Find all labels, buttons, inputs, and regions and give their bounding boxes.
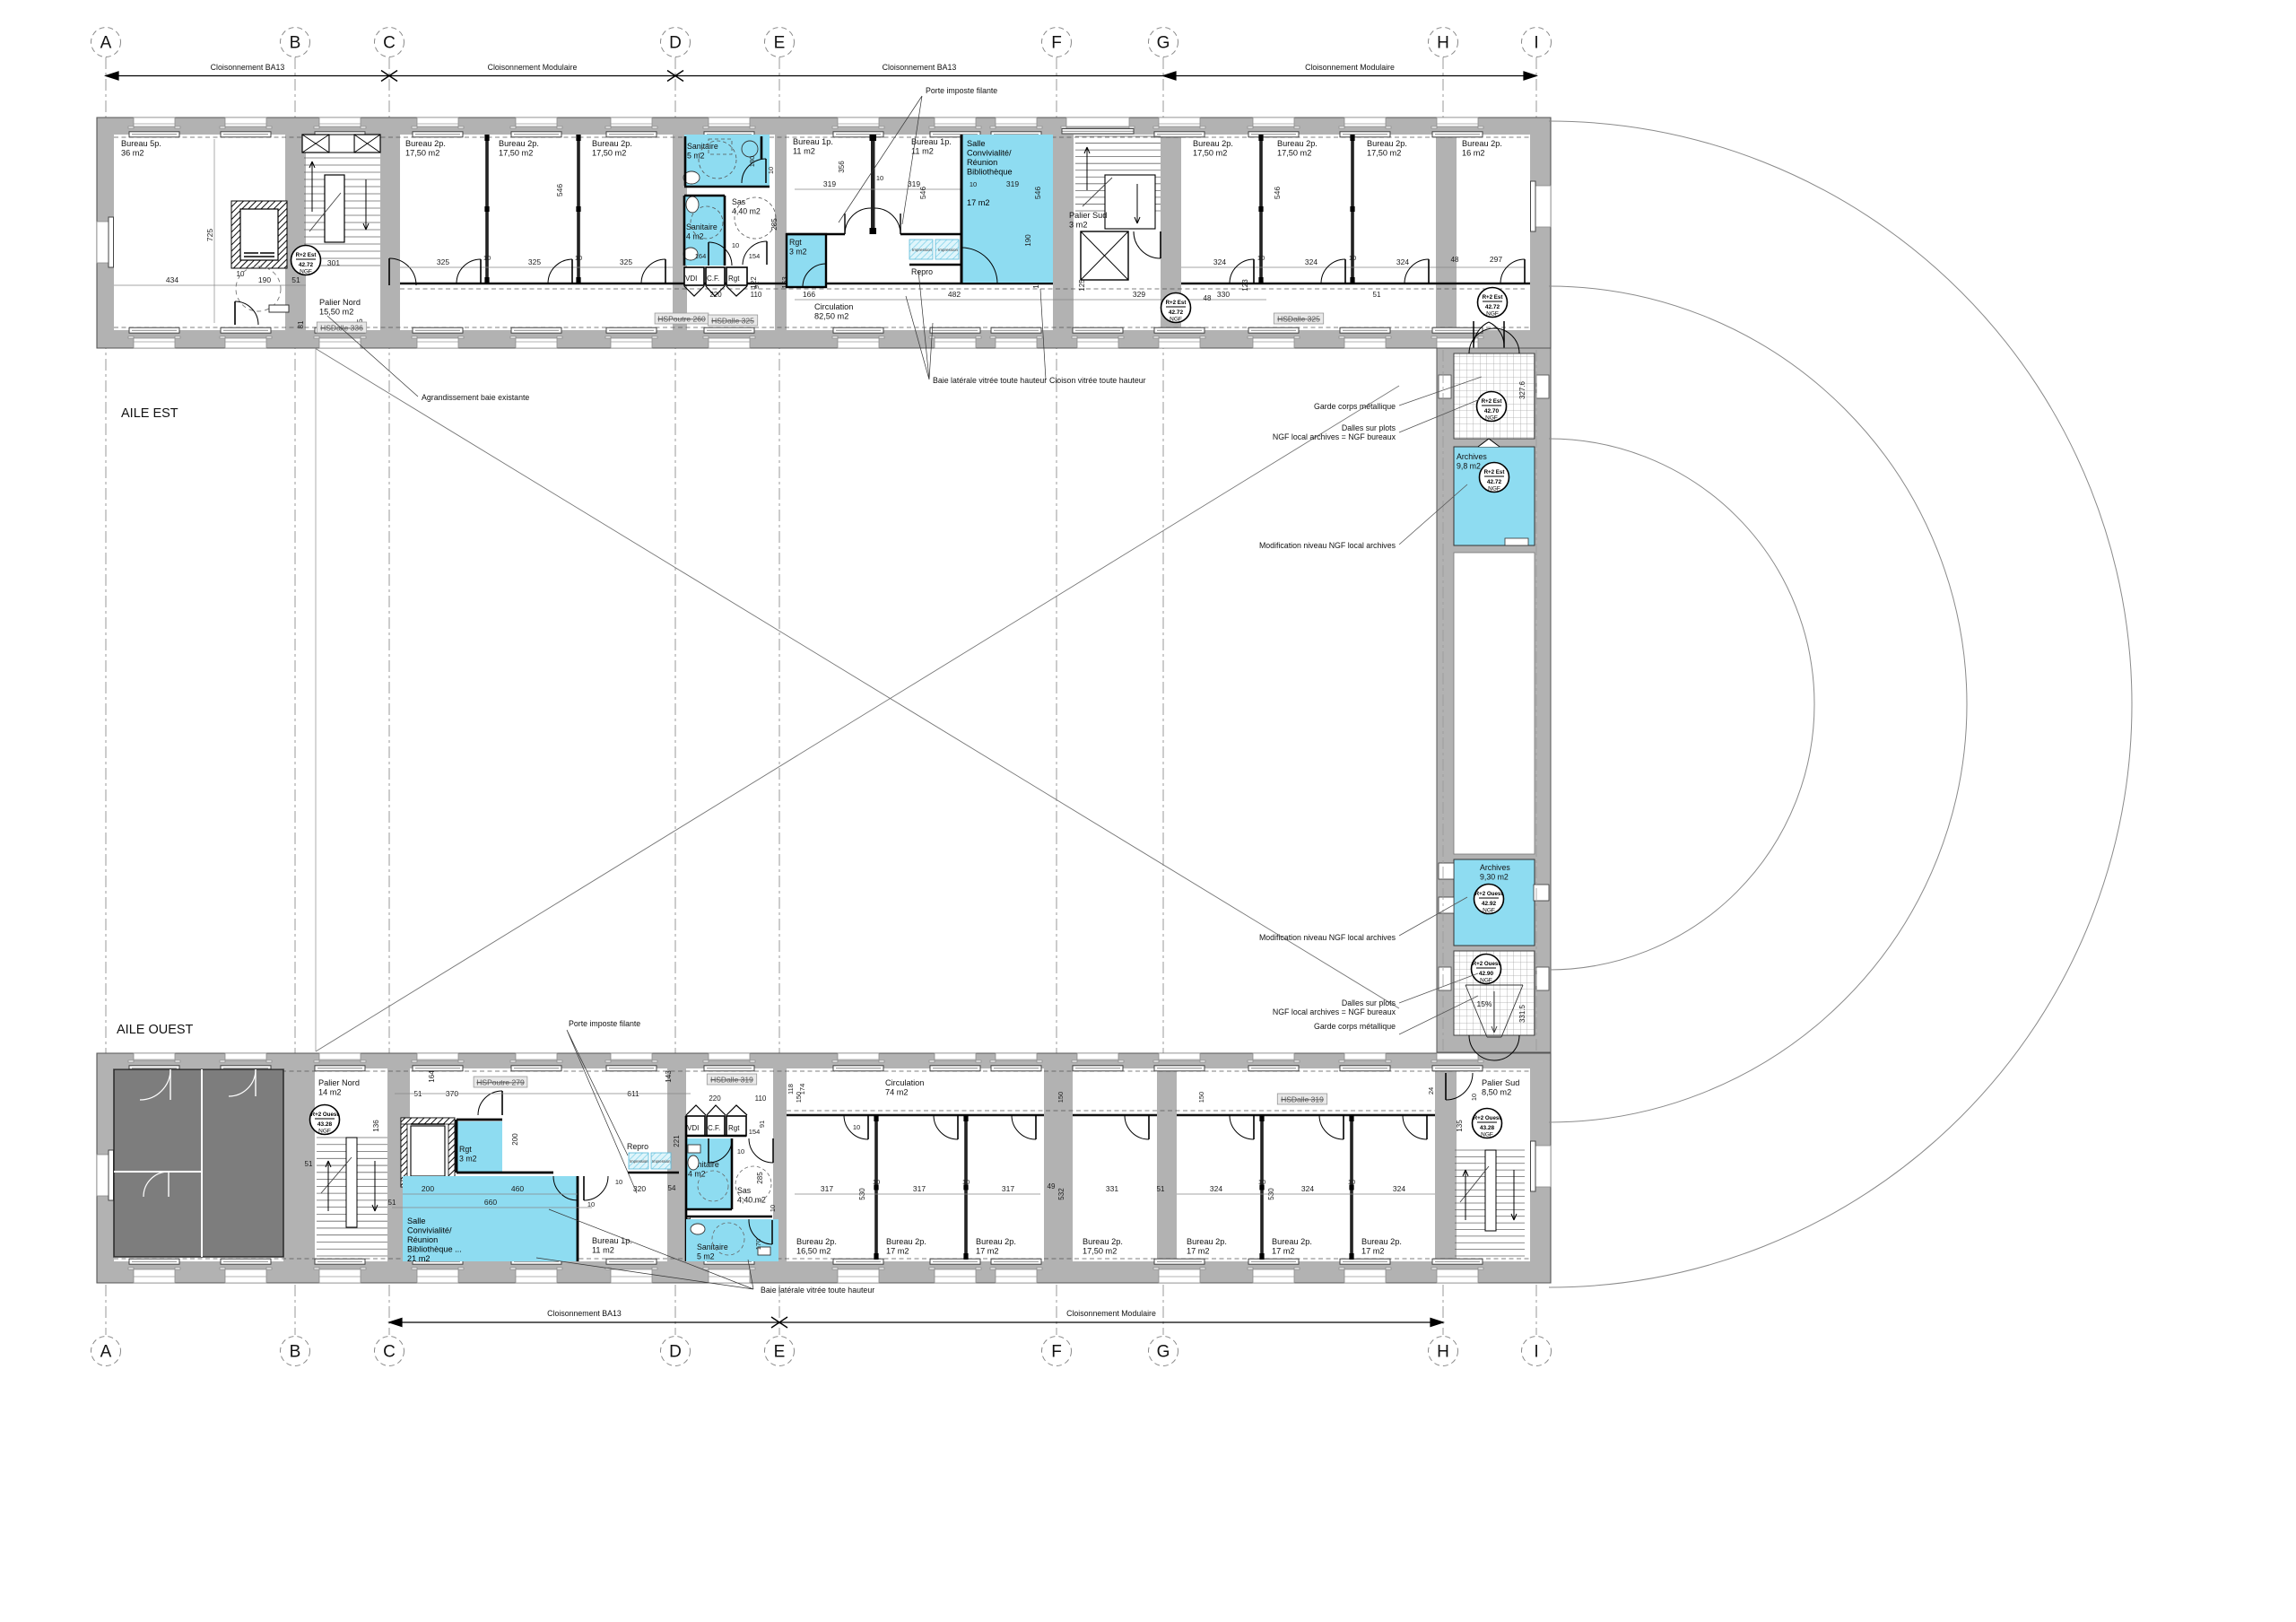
svg-text:NGF: NGF bbox=[1483, 908, 1495, 914]
svg-text:Repro: Repro bbox=[911, 267, 933, 276]
svg-text:150: 150 bbox=[795, 1092, 803, 1103]
svg-text:C: C bbox=[383, 34, 396, 53]
svg-text:14 m2: 14 m2 bbox=[318, 1088, 342, 1097]
svg-text:10: 10 bbox=[876, 174, 883, 182]
svg-text:532: 532 bbox=[1057, 1188, 1065, 1200]
svg-text:42.72: 42.72 bbox=[1485, 304, 1500, 310]
svg-text:49: 49 bbox=[1048, 1182, 1056, 1190]
svg-text:5 m2: 5 m2 bbox=[697, 1252, 715, 1261]
svg-text:110: 110 bbox=[751, 291, 762, 299]
svg-text:HSDalle 325: HSDalle 325 bbox=[711, 317, 754, 326]
svg-text:10: 10 bbox=[615, 1178, 622, 1186]
svg-text:220: 220 bbox=[709, 1094, 721, 1103]
svg-text:Bureau 2p.: Bureau 2p. bbox=[592, 139, 632, 148]
svg-text:Cloisonnement Modulaire: Cloisonnement Modulaire bbox=[1066, 1309, 1156, 1318]
svg-text:Bureau 1p.: Bureau 1p. bbox=[911, 137, 952, 146]
svg-text:325: 325 bbox=[528, 257, 541, 266]
svg-text:327.6: 327.6 bbox=[1518, 380, 1526, 399]
svg-text:Bureau 1p.: Bureau 1p. bbox=[793, 137, 833, 146]
svg-text:42.72: 42.72 bbox=[1169, 310, 1184, 316]
svg-text:190: 190 bbox=[1024, 234, 1032, 247]
svg-text:725: 725 bbox=[205, 229, 214, 241]
svg-text:Dalles sur plots: Dalles sur plots bbox=[1342, 423, 1396, 432]
svg-text:8,50 m2: 8,50 m2 bbox=[1482, 1088, 1511, 1097]
svg-text:HSPoutre 279: HSPoutre 279 bbox=[476, 1078, 525, 1087]
svg-text:C.F.: C.F. bbox=[707, 275, 719, 283]
svg-text:136: 136 bbox=[372, 1120, 380, 1132]
svg-text:17 m2: 17 m2 bbox=[976, 1247, 999, 1256]
svg-text:Cloison vitrée toute hauteur: Cloison vitrée toute hauteur bbox=[1049, 376, 1146, 385]
svg-text:H: H bbox=[1437, 1343, 1449, 1362]
svg-text:Modification niveau NGF local: Modification niveau NGF local archives bbox=[1259, 933, 1396, 942]
svg-text:17 m2: 17 m2 bbox=[1272, 1247, 1295, 1256]
svg-text:74 m2: 74 m2 bbox=[885, 1088, 909, 1097]
svg-text:Rgt: Rgt bbox=[789, 238, 802, 247]
svg-text:51: 51 bbox=[1373, 291, 1381, 299]
svg-text:Bureau 2p.: Bureau 2p. bbox=[1277, 139, 1318, 148]
svg-text:Bureau 2p.: Bureau 2p. bbox=[1462, 139, 1502, 148]
svg-text:15,50 m2: 15,50 m2 bbox=[319, 308, 353, 317]
svg-text:I: I bbox=[1534, 1343, 1538, 1362]
svg-text:125: 125 bbox=[1078, 279, 1086, 292]
svg-text:324: 324 bbox=[1210, 1184, 1222, 1193]
svg-text:221: 221 bbox=[673, 1135, 681, 1147]
svg-text:17,50 m2: 17,50 m2 bbox=[1277, 149, 1311, 158]
svg-text:Rgt: Rgt bbox=[459, 1145, 472, 1154]
svg-text:51: 51 bbox=[414, 1090, 422, 1098]
svg-text:434: 434 bbox=[166, 275, 178, 284]
svg-text:81: 81 bbox=[297, 320, 305, 328]
svg-text:Bureau 2p.: Bureau 2p. bbox=[886, 1237, 926, 1246]
svg-text:AILE EST: AILE EST bbox=[121, 406, 178, 421]
svg-text:NGF local archives = NGF burea: NGF local archives = NGF bureaux bbox=[1273, 1007, 1396, 1016]
svg-text:D: D bbox=[669, 34, 682, 53]
svg-text:51: 51 bbox=[1157, 1185, 1165, 1193]
svg-text:143: 143 bbox=[665, 1070, 673, 1083]
svg-text:3 m2: 3 m2 bbox=[789, 248, 807, 257]
svg-text:VDI: VDI bbox=[687, 1124, 699, 1132]
svg-text:150: 150 bbox=[1057, 1092, 1065, 1103]
svg-text:R+2 Est: R+2 Est bbox=[1166, 300, 1187, 306]
svg-text:Bureau 2p.: Bureau 2p. bbox=[1272, 1237, 1312, 1246]
svg-text:10: 10 bbox=[873, 1178, 880, 1186]
svg-text:C.F.: C.F. bbox=[708, 1124, 720, 1132]
svg-text:17,50 m2: 17,50 m2 bbox=[499, 149, 533, 158]
svg-text:54: 54 bbox=[668, 1184, 676, 1192]
svg-text:324: 324 bbox=[1393, 1184, 1405, 1193]
svg-text:A: A bbox=[100, 34, 112, 53]
svg-text:Modification niveau NGF local: Modification niveau NGF local archives bbox=[1259, 541, 1396, 550]
svg-text:110: 110 bbox=[755, 1094, 767, 1103]
svg-text:546: 546 bbox=[1273, 187, 1282, 199]
svg-text:546: 546 bbox=[555, 184, 564, 196]
svg-text:NGF: NGF bbox=[300, 269, 312, 275]
svg-text:NGF: NGF bbox=[1485, 415, 1498, 422]
svg-text:Rgt: Rgt bbox=[728, 275, 740, 283]
svg-text:Sanitaire: Sanitaire bbox=[697, 1243, 728, 1251]
svg-text:Archives: Archives bbox=[1480, 863, 1510, 872]
svg-text:Réunion: Réunion bbox=[967, 158, 997, 167]
svg-text:NGF: NGF bbox=[1480, 978, 1492, 984]
svg-text:Bureau 2p.: Bureau 2p. bbox=[1083, 1237, 1123, 1246]
svg-text:190: 190 bbox=[258, 275, 271, 284]
svg-text:NGF local archives = NGF burea: NGF local archives = NGF bureaux bbox=[1273, 432, 1396, 441]
svg-text:Bibliothèque: Bibliothèque bbox=[967, 168, 1013, 177]
svg-text:AILE OUEST: AILE OUEST bbox=[117, 1023, 194, 1037]
svg-text:10: 10 bbox=[767, 167, 775, 174]
svg-text:16,50 m2: 16,50 m2 bbox=[796, 1247, 831, 1256]
svg-text:Garde corps métallique: Garde corps métallique bbox=[1314, 402, 1396, 411]
svg-text:Palier Sud: Palier Sud bbox=[1069, 211, 1107, 220]
svg-text:Bureau 2p.: Bureau 2p. bbox=[499, 139, 539, 148]
svg-text:NGF: NGF bbox=[1488, 486, 1500, 493]
svg-text:330: 330 bbox=[1217, 290, 1230, 299]
svg-text:546: 546 bbox=[918, 187, 927, 199]
svg-text:Palier Nord: Palier Nord bbox=[319, 298, 361, 307]
svg-text:10: 10 bbox=[962, 1178, 970, 1186]
svg-text:D: D bbox=[669, 1343, 682, 1362]
svg-text:Palier Sud: Palier Sud bbox=[1482, 1078, 1519, 1087]
svg-text:10: 10 bbox=[970, 180, 977, 188]
svg-text:10: 10 bbox=[853, 1123, 860, 1131]
svg-text:48: 48 bbox=[1204, 294, 1212, 302]
svg-text:Bureau 2p.: Bureau 2p. bbox=[976, 1237, 1016, 1246]
svg-text:301: 301 bbox=[327, 258, 340, 267]
svg-text:3 m2: 3 m2 bbox=[459, 1155, 477, 1164]
svg-text:10: 10 bbox=[237, 270, 245, 278]
svg-text:324: 324 bbox=[1396, 257, 1409, 266]
svg-text:154: 154 bbox=[749, 1128, 761, 1136]
svg-text:17,50 m2: 17,50 m2 bbox=[1367, 149, 1401, 158]
svg-text:43.28: 43.28 bbox=[317, 1121, 333, 1128]
svg-text:E: E bbox=[774, 1343, 786, 1362]
svg-text:17 m2: 17 m2 bbox=[886, 1247, 909, 1256]
svg-text:91: 91 bbox=[758, 1121, 766, 1128]
svg-text:Palier Nord: Palier Nord bbox=[318, 1078, 360, 1087]
svg-text:317: 317 bbox=[1002, 1184, 1014, 1193]
svg-text:324: 324 bbox=[1213, 257, 1226, 266]
svg-text:Baie latérale vitrée toute hau: Baie latérale vitrée toute hauteur bbox=[761, 1286, 874, 1295]
svg-text:A: A bbox=[100, 1343, 112, 1362]
svg-text:Impression: Impression bbox=[938, 248, 959, 252]
svg-text:Circulation: Circulation bbox=[885, 1078, 924, 1087]
svg-text:21 m2: 21 m2 bbox=[407, 1254, 430, 1263]
svg-text:317: 317 bbox=[913, 1184, 926, 1193]
svg-text:Bureau 2p.: Bureau 2p. bbox=[1361, 1237, 1402, 1246]
svg-text:166: 166 bbox=[803, 290, 815, 299]
svg-text:10: 10 bbox=[769, 1205, 777, 1212]
svg-text:10: 10 bbox=[1257, 254, 1265, 262]
svg-text:Impression: Impression bbox=[912, 248, 933, 252]
svg-text:Dalles sur plots: Dalles sur plots bbox=[1342, 998, 1396, 1007]
svg-text:164: 164 bbox=[695, 252, 707, 260]
svg-text:356: 356 bbox=[838, 161, 846, 173]
svg-text:36 m2: 36 m2 bbox=[121, 149, 144, 158]
svg-text:200: 200 bbox=[422, 1184, 434, 1193]
svg-text:325: 325 bbox=[437, 257, 449, 266]
svg-text:170: 170 bbox=[754, 1239, 762, 1251]
svg-text:I: I bbox=[1534, 34, 1538, 53]
svg-text:Agrandissement baie existante: Agrandissement baie existante bbox=[422, 393, 529, 402]
svg-text:319: 319 bbox=[823, 179, 836, 188]
svg-text:Cloisonnement BA13: Cloisonnement BA13 bbox=[211, 63, 285, 72]
svg-text:4,40 m2: 4,40 m2 bbox=[732, 207, 761, 216]
svg-text:5 m2: 5 m2 bbox=[687, 152, 705, 161]
svg-text:Bureau 1p.: Bureau 1p. bbox=[592, 1236, 632, 1245]
svg-text:Sas: Sas bbox=[737, 1186, 752, 1195]
svg-text:10: 10 bbox=[483, 254, 491, 262]
svg-text:324: 324 bbox=[1305, 257, 1318, 266]
svg-text:Cloisonnement Modulaire: Cloisonnement Modulaire bbox=[488, 63, 578, 72]
svg-text:10: 10 bbox=[1470, 1094, 1478, 1101]
svg-text:E: E bbox=[774, 34, 786, 53]
svg-text:319: 319 bbox=[1006, 179, 1019, 188]
svg-text:Convivialité/: Convivialité/ bbox=[407, 1226, 452, 1235]
svg-text:24: 24 bbox=[1427, 1087, 1435, 1094]
svg-text:Impression: Impression bbox=[630, 1159, 648, 1164]
svg-text:180: 180 bbox=[748, 156, 756, 168]
svg-text:17 m2: 17 m2 bbox=[1361, 1247, 1385, 1256]
svg-text:Cloisonnement BA13: Cloisonnement BA13 bbox=[547, 1309, 622, 1318]
svg-text:Bureau 2p.: Bureau 2p. bbox=[1187, 1237, 1227, 1246]
svg-text:HSDalle 319: HSDalle 319 bbox=[710, 1076, 753, 1085]
svg-text:11 m2: 11 m2 bbox=[793, 147, 815, 156]
svg-text:546: 546 bbox=[1033, 187, 1042, 199]
svg-text:17,50 m2: 17,50 m2 bbox=[1193, 149, 1227, 158]
svg-text:297: 297 bbox=[1490, 255, 1502, 264]
svg-text:Repro: Repro bbox=[627, 1142, 648, 1151]
svg-text:17,50 m2: 17,50 m2 bbox=[1083, 1247, 1117, 1256]
svg-text:Réunion: Réunion bbox=[407, 1235, 438, 1244]
svg-text:42.70: 42.70 bbox=[1484, 408, 1500, 414]
svg-text:42.92: 42.92 bbox=[1482, 901, 1497, 907]
svg-text:135: 135 bbox=[1456, 1120, 1464, 1132]
svg-text:331: 331 bbox=[1106, 1184, 1118, 1193]
svg-text:G: G bbox=[1157, 34, 1170, 53]
svg-text:42.72: 42.72 bbox=[299, 262, 314, 268]
svg-text:R+2 Est: R+2 Est bbox=[1483, 294, 1503, 301]
svg-text:Porte imposte filante: Porte imposte filante bbox=[926, 86, 997, 95]
svg-text:Archives: Archives bbox=[1457, 452, 1487, 461]
svg-text:Impression: Impression bbox=[652, 1159, 671, 1164]
svg-text:51: 51 bbox=[305, 1160, 313, 1168]
svg-text:10: 10 bbox=[575, 254, 582, 262]
svg-text:660: 660 bbox=[484, 1198, 497, 1207]
svg-text:Bureau 2p.: Bureau 2p. bbox=[1367, 139, 1407, 148]
svg-text:51: 51 bbox=[291, 275, 300, 284]
svg-text:17,50 m2: 17,50 m2 bbox=[592, 149, 626, 158]
svg-text:HSDalle 336: HSDalle 336 bbox=[320, 324, 363, 333]
svg-text:R+2 Ouest: R+2 Ouest bbox=[1473, 961, 1500, 967]
svg-text:Salle: Salle bbox=[967, 139, 985, 148]
svg-text:11 m2: 11 m2 bbox=[592, 1246, 614, 1255]
svg-text:R+2 Ouest: R+2 Ouest bbox=[311, 1112, 339, 1118]
svg-text:15%: 15% bbox=[1476, 999, 1492, 1008]
svg-text:B: B bbox=[290, 1343, 301, 1362]
svg-text:Salle: Salle bbox=[407, 1216, 425, 1225]
svg-text:Sanitaire: Sanitaire bbox=[686, 222, 717, 231]
svg-text:285: 285 bbox=[770, 218, 778, 231]
svg-text:10: 10 bbox=[737, 1147, 744, 1155]
svg-text:285: 285 bbox=[756, 1172, 764, 1184]
svg-text:3 m2: 3 m2 bbox=[1069, 221, 1087, 230]
svg-text:10: 10 bbox=[732, 241, 739, 249]
svg-text:17 m2: 17 m2 bbox=[967, 198, 990, 207]
svg-text:123: 123 bbox=[1241, 279, 1249, 292]
svg-text:9,8 m2: 9,8 m2 bbox=[1457, 462, 1481, 471]
svg-text:Sanitaire: Sanitaire bbox=[687, 142, 718, 151]
svg-text:4 m2: 4 m2 bbox=[688, 1170, 706, 1179]
svg-text:Bureau 2p.: Bureau 2p. bbox=[796, 1237, 837, 1246]
svg-text:NGF: NGF bbox=[1481, 1132, 1493, 1138]
svg-text:154: 154 bbox=[749, 252, 761, 260]
svg-text:R+2 Ouest: R+2 Ouest bbox=[1474, 1115, 1501, 1121]
svg-text:VDI: VDI bbox=[685, 275, 697, 283]
svg-text:122: 122 bbox=[750, 276, 758, 289]
svg-text:NGF: NGF bbox=[1170, 317, 1182, 323]
svg-text:200: 200 bbox=[511, 1133, 519, 1146]
svg-text:51: 51 bbox=[388, 1199, 396, 1207]
svg-text:10: 10 bbox=[1349, 254, 1356, 262]
svg-text:48: 48 bbox=[1451, 256, 1459, 264]
svg-text:329: 329 bbox=[1133, 290, 1145, 299]
svg-text:17 m2: 17 m2 bbox=[1187, 1247, 1210, 1256]
svg-text:118: 118 bbox=[787, 1084, 795, 1094]
svg-text:Bureau 2p.: Bureau 2p. bbox=[1193, 139, 1233, 148]
svg-text:Convivialité/: Convivialité/ bbox=[967, 149, 1012, 158]
svg-text:R+2 Est: R+2 Est bbox=[296, 252, 317, 258]
svg-text:325: 325 bbox=[620, 257, 632, 266]
svg-text:Circulation: Circulation bbox=[814, 302, 853, 311]
svg-text:HSPoutre 260: HSPoutre 260 bbox=[657, 315, 706, 324]
svg-text:Rgt: Rgt bbox=[728, 1124, 740, 1132]
svg-text:460: 460 bbox=[511, 1184, 524, 1193]
svg-text:C: C bbox=[383, 1343, 396, 1362]
svg-text:42.90: 42.90 bbox=[1479, 971, 1494, 977]
svg-text:164: 164 bbox=[428, 1070, 436, 1083]
svg-text:NGF: NGF bbox=[1486, 311, 1499, 318]
svg-text:F: F bbox=[1051, 1343, 1062, 1362]
svg-text:Bureau 5p.: Bureau 5p. bbox=[121, 139, 161, 148]
svg-text:G: G bbox=[1157, 1343, 1170, 1362]
svg-text:150: 150 bbox=[1197, 1092, 1205, 1103]
svg-text:317: 317 bbox=[821, 1184, 833, 1193]
svg-text:HSDalle 325: HSDalle 325 bbox=[1277, 315, 1320, 324]
svg-text:482: 482 bbox=[948, 290, 961, 299]
svg-text:NGF: NGF bbox=[318, 1129, 331, 1135]
svg-text:H: H bbox=[1437, 34, 1449, 53]
svg-text:B: B bbox=[290, 34, 301, 53]
svg-text:R+2 Ouest: R+2 Ouest bbox=[1475, 891, 1503, 897]
svg-text:Garde corps métallique: Garde corps métallique bbox=[1314, 1022, 1396, 1031]
svg-text:Bureau 2p.: Bureau 2p. bbox=[405, 139, 446, 148]
svg-text:F: F bbox=[1051, 34, 1062, 53]
svg-text:Bibliothèque ...: Bibliothèque ... bbox=[407, 1245, 462, 1254]
svg-text:42.72: 42.72 bbox=[1487, 479, 1502, 485]
svg-text:9,30 m2: 9,30 m2 bbox=[1480, 873, 1509, 882]
svg-text:Cloisonnement Modulaire: Cloisonnement Modulaire bbox=[1305, 63, 1395, 72]
svg-text:10: 10 bbox=[1348, 1178, 1355, 1186]
svg-text:331.5: 331.5 bbox=[1518, 1004, 1526, 1023]
svg-text:10: 10 bbox=[1258, 1178, 1265, 1186]
svg-text:16 m2: 16 m2 bbox=[1462, 149, 1485, 158]
svg-text:43.28: 43.28 bbox=[1480, 1125, 1495, 1131]
svg-text:82,50 m2: 82,50 m2 bbox=[814, 312, 848, 321]
svg-text:R+2 Est: R+2 Est bbox=[1484, 469, 1505, 475]
svg-text:Cloisonnement BA13: Cloisonnement BA13 bbox=[883, 63, 957, 72]
svg-text:11 m2: 11 m2 bbox=[911, 147, 934, 156]
svg-text:Baie latérale vitrée toute hau: Baie latérale vitrée toute hauteur bbox=[933, 376, 1047, 385]
svg-text:HSDalle 319: HSDalle 319 bbox=[1281, 1095, 1324, 1104]
svg-text:R+2 Est: R+2 Est bbox=[1482, 398, 1502, 405]
svg-text:Porte imposte filante: Porte imposte filante bbox=[569, 1019, 640, 1028]
svg-text:324: 324 bbox=[1301, 1184, 1314, 1193]
svg-text:17,50 m2: 17,50 m2 bbox=[405, 149, 439, 158]
